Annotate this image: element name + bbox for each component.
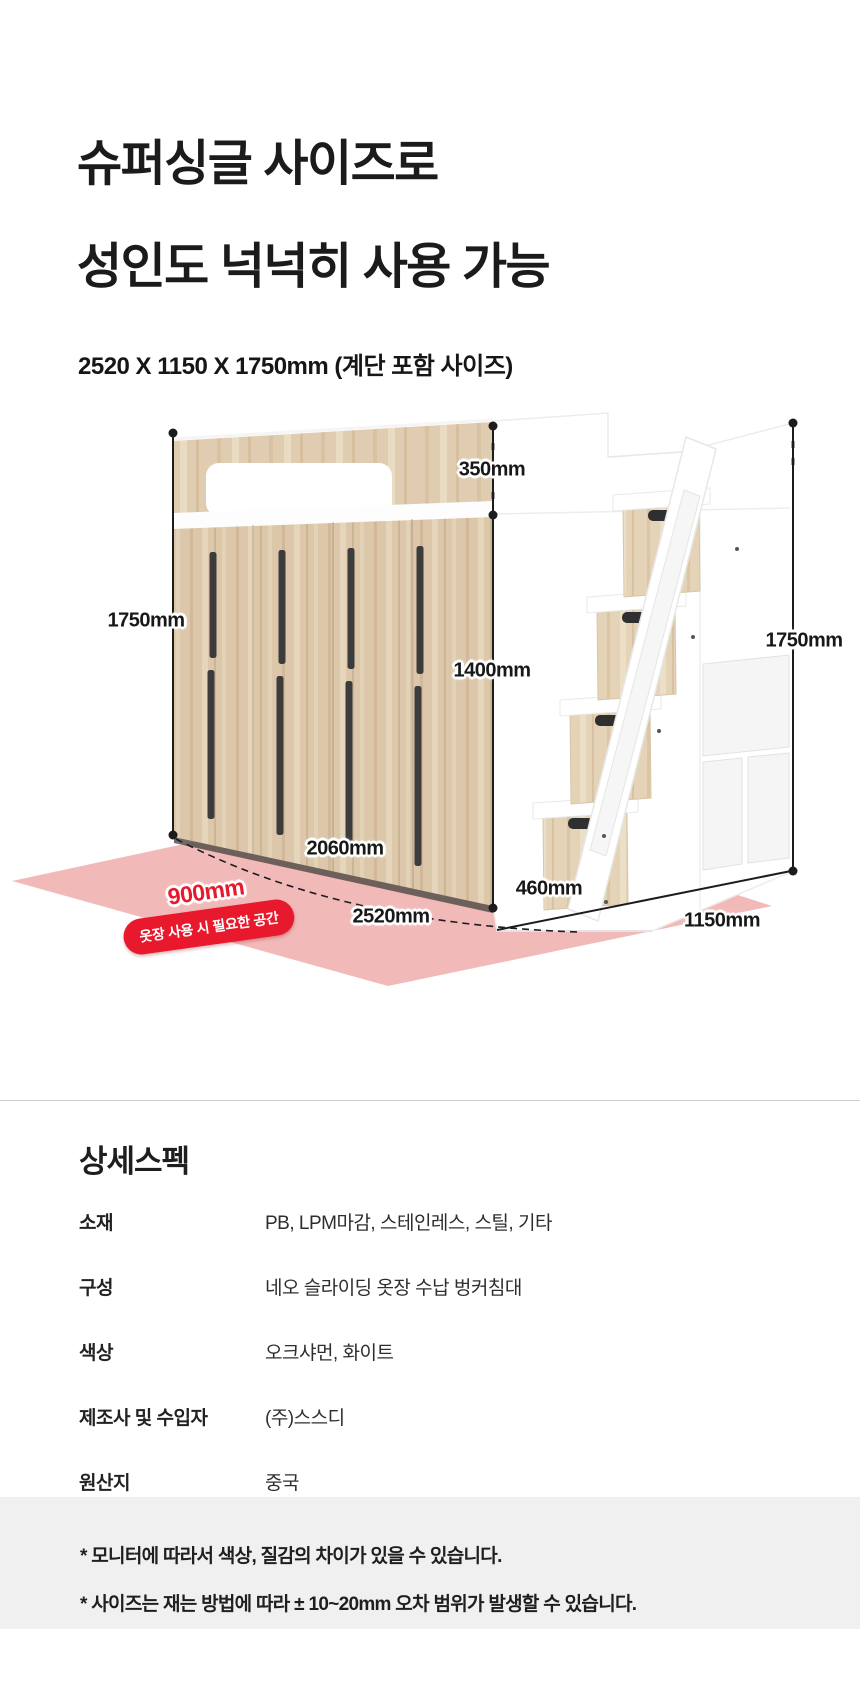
dimension-diagram: 1750mm 350mm 1400mm 1750mm 2060mm 2520mm… [0,0,860,1010]
spec-table: 소재 PB, LPM마감, 스테인레스, 스틸, 기타 구성 네오 슬라이딩 옷… [79,1189,779,1514]
spec-row-material: 소재 PB, LPM마감, 스테인레스, 스틸, 기타 [79,1189,779,1254]
spec-label: 제조사 및 수입자 [79,1403,265,1430]
spec-label: 색상 [79,1338,265,1365]
spec-value: 중국 [265,1468,299,1495]
spec-value: 오크샤먼, 화이트 [265,1338,393,1365]
spec-label: 원산지 [79,1468,265,1495]
spec-value: PB, LPM마감, 스테인레스, 스틸, 기타 [265,1208,552,1235]
footnote-size-tolerance: * 사이즈는 재는 방법에 따라 ± 10~20mm 오차 범위가 발생할 수 … [80,1581,820,1629]
spec-row-manufacturer: 제조사 및 수입자 (주)스스디 [79,1384,779,1449]
section-divider [0,1100,860,1101]
spec-row-color: 색상 오크샤먼, 화이트 [79,1319,779,1384]
spec-value: 네오 슬라이딩 옷장 수납 벙커침대 [265,1273,522,1300]
spec-heading: 상세스펙 [79,1136,189,1181]
dim-label-total-width: 2520mm [352,906,429,929]
dim-label-wardrobe-width: 2060mm [306,838,383,861]
dim-label-under-bed: 1400mm [453,660,530,683]
dim-label-headboard: 350mm [459,459,525,482]
dim-label-right-height: 1750mm [765,630,842,653]
product-detail-page: 슈퍼싱글 사이즈로 성인도 넉넉히 사용 가능 2520 X 1150 X 17… [0,0,860,1700]
dim-label-side-depth: 1150mm [684,910,760,933]
footnotes-box: * 모니터에 따라서 색상, 질감의 차이가 있을 수 있습니다. * 사이즈는… [0,1497,860,1629]
spec-value: (주)스스디 [265,1403,345,1430]
spec-label: 소재 [79,1208,265,1235]
footnote-monitor: * 모니터에 따라서 색상, 질감의 차이가 있을 수 있습니다. [80,1533,820,1581]
dim-label-stair-depth: 460mm [516,878,582,901]
spec-row-composition: 구성 네오 슬라이딩 옷장 수납 벙커침대 [79,1254,779,1319]
spec-label: 구성 [79,1273,265,1300]
dim-label-left-height: 1750mm [107,610,184,633]
bunk-bed-illustration [0,0,860,1010]
